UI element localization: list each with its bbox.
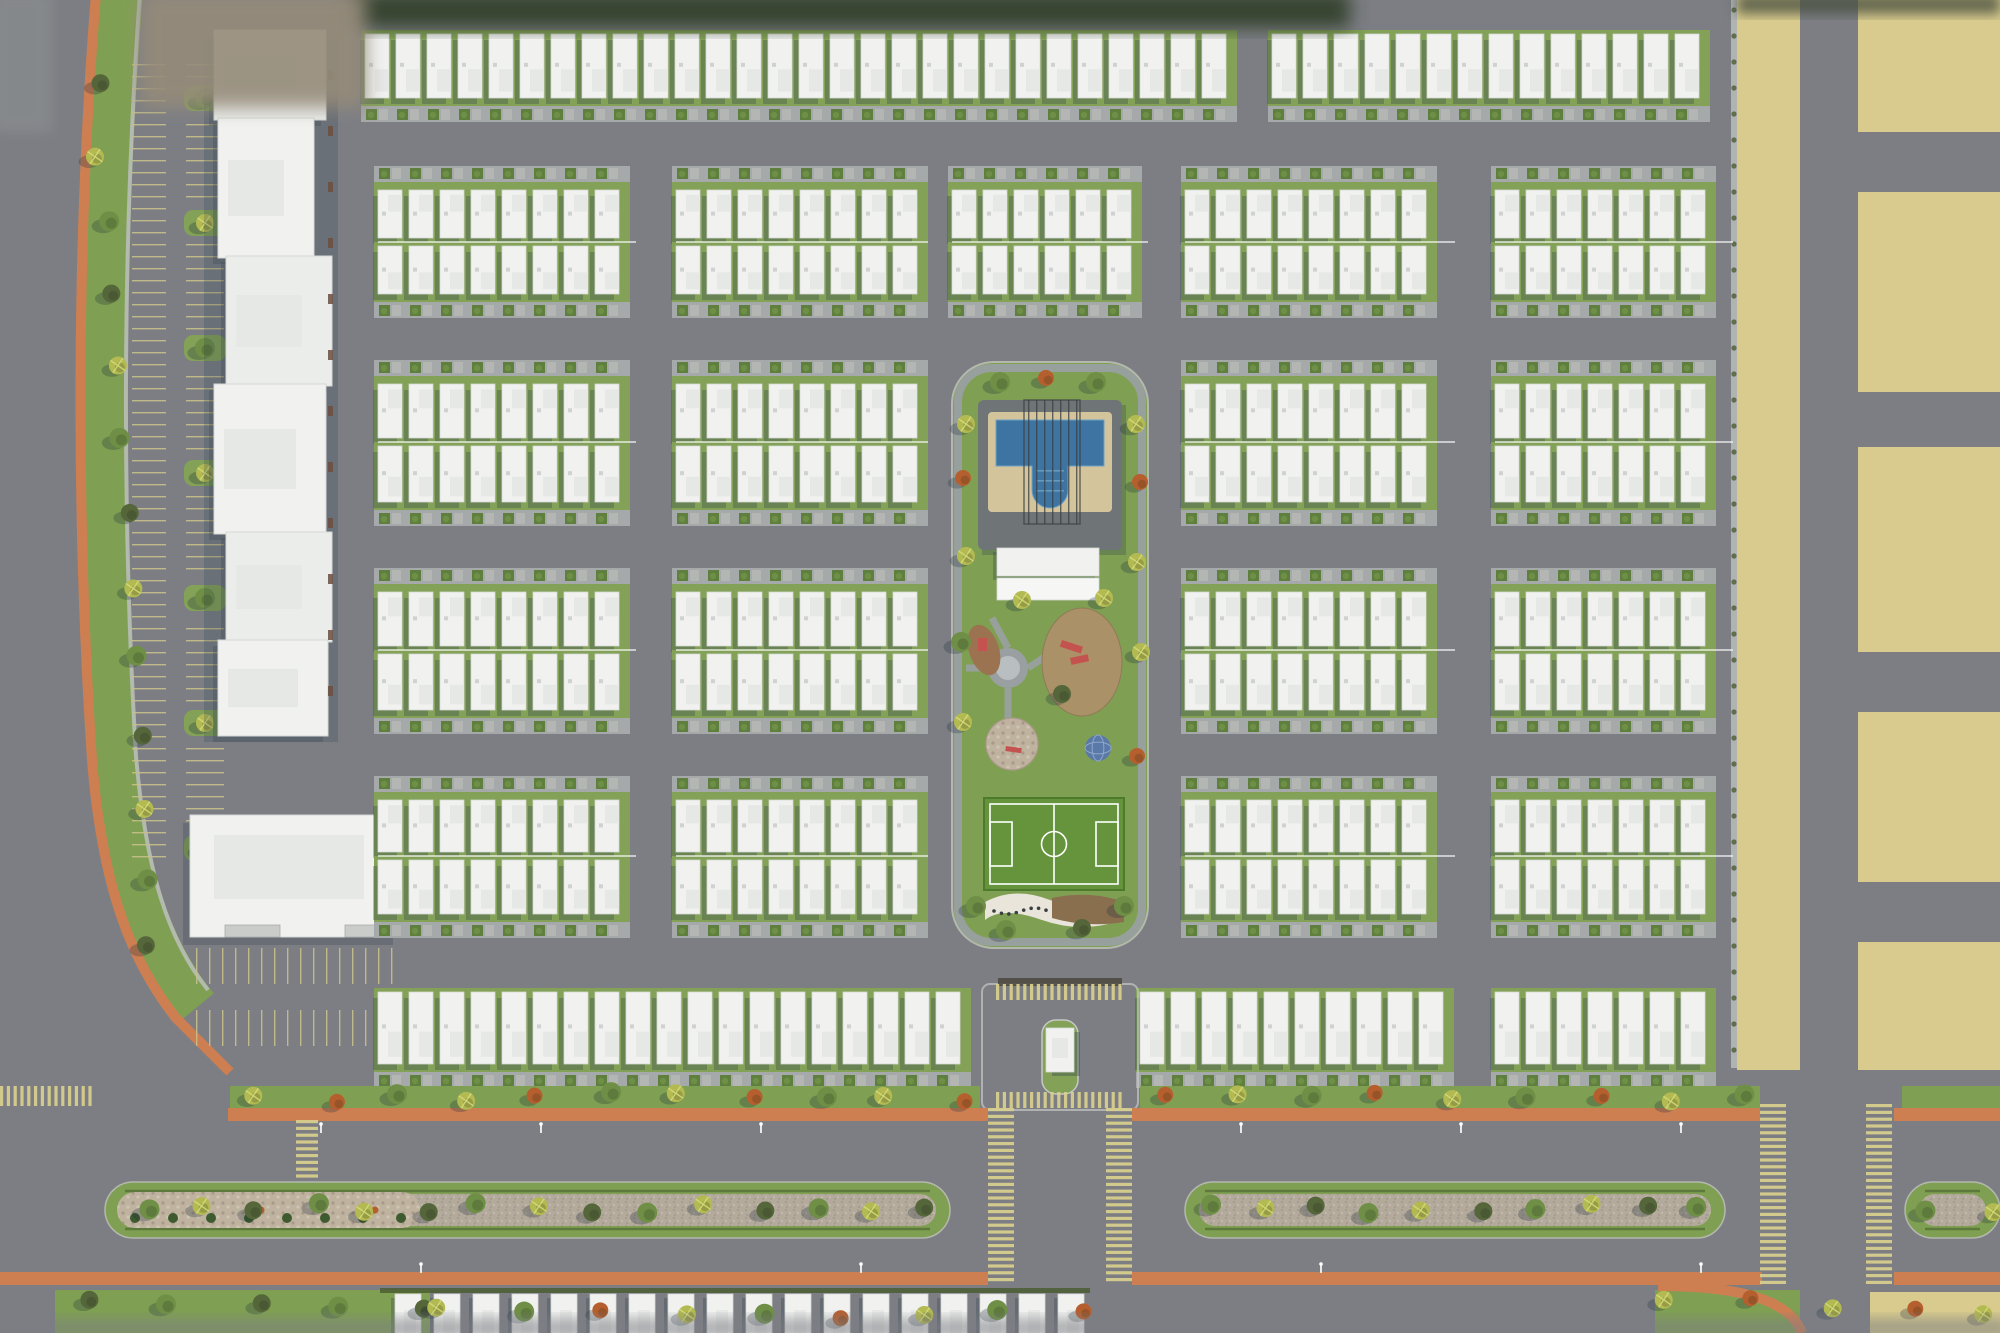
- block1-south: [373, 242, 1716, 318]
- master-plan-svg: [0, 0, 2000, 1333]
- central-park: [944, 362, 1151, 948]
- block1-north: [373, 166, 1716, 244]
- site-plan-render: [0, 0, 2000, 1333]
- top-row: [360, 30, 1710, 122]
